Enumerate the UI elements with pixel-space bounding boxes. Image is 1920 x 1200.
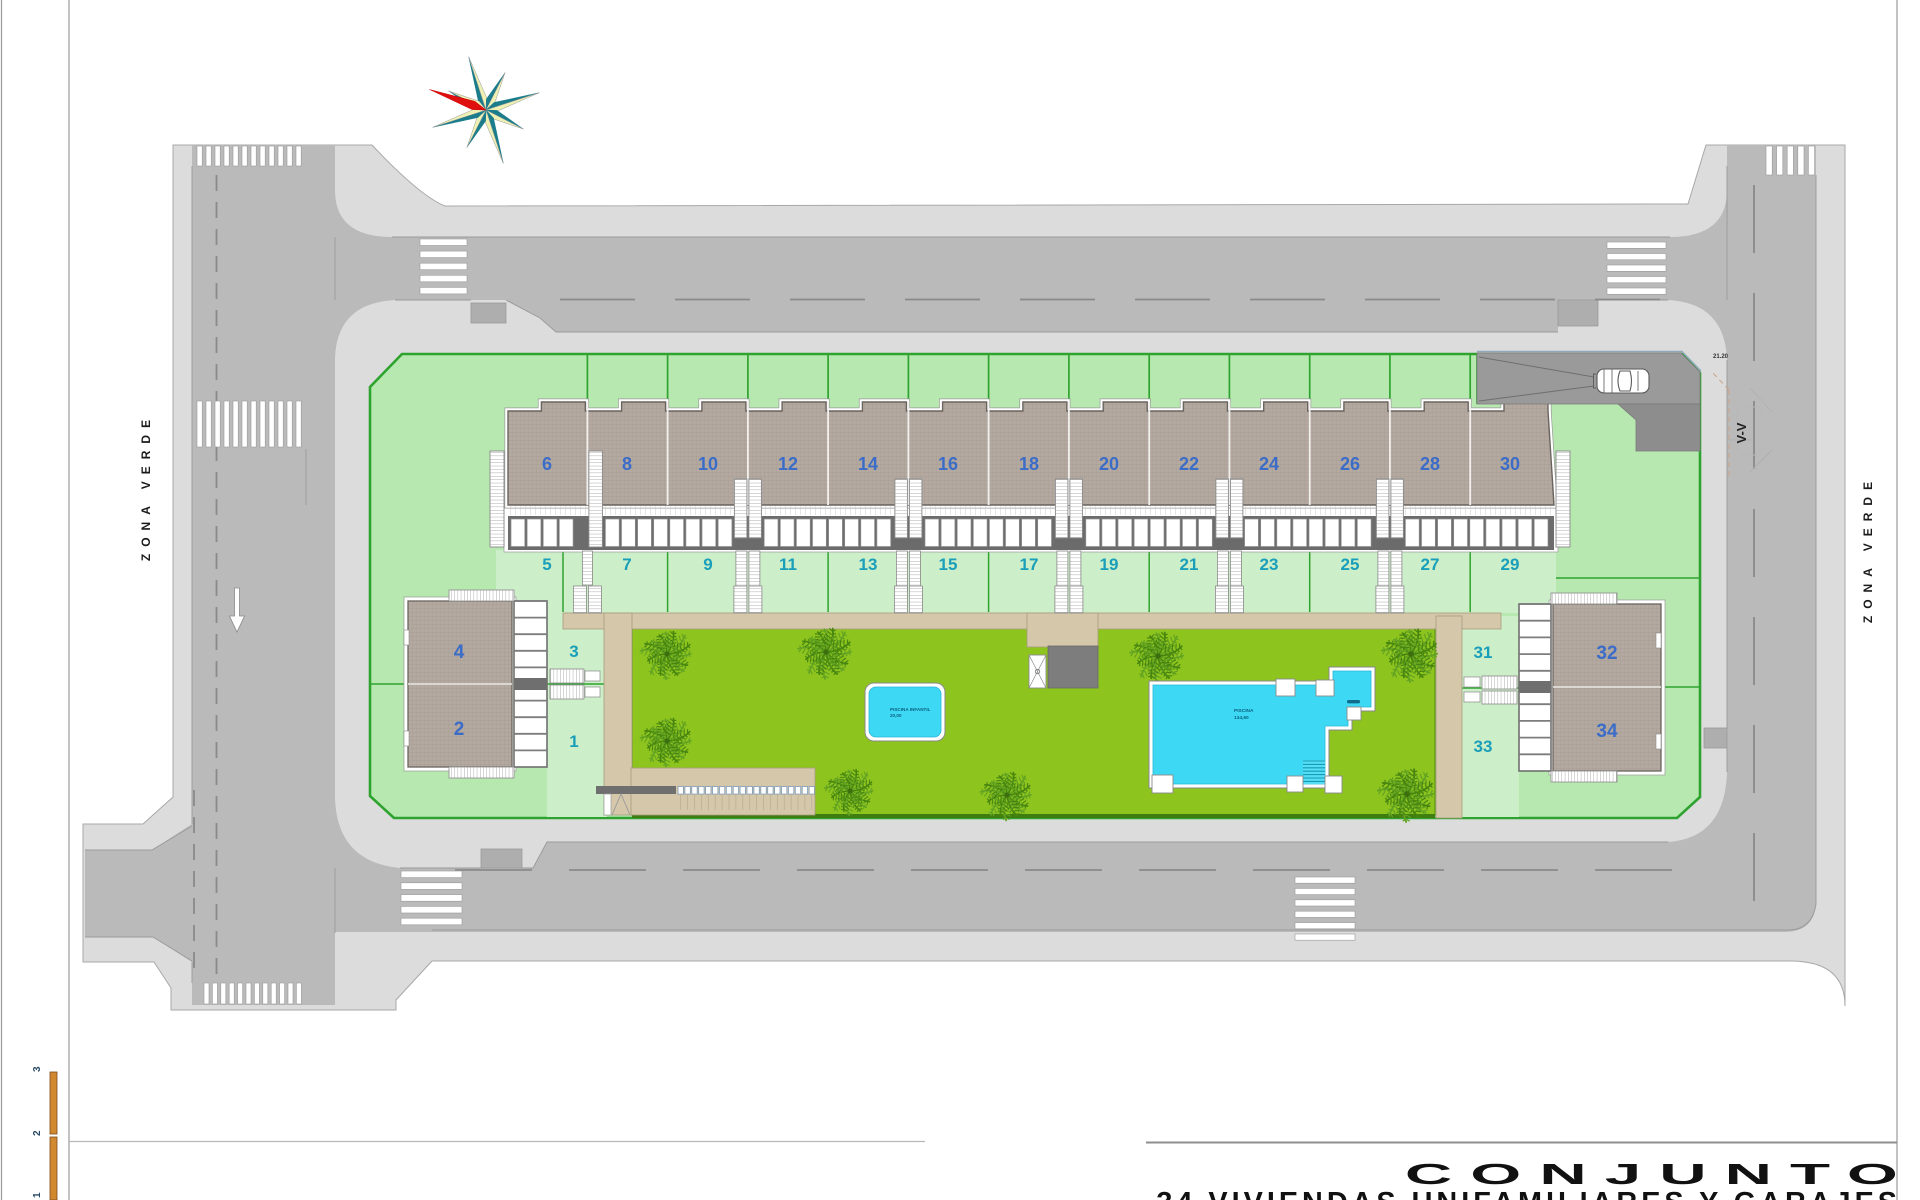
svg-text:20: 20 xyxy=(1099,454,1119,474)
svg-text:3: 3 xyxy=(32,1066,43,1072)
svg-text:1: 1 xyxy=(32,1192,43,1198)
svg-text:31: 31 xyxy=(1474,643,1493,662)
svg-text:21.20: 21.20 xyxy=(1713,354,1729,360)
svg-text:V-V: V-V xyxy=(1734,422,1749,443)
svg-text:19: 19 xyxy=(1100,555,1119,574)
svg-text:17: 17 xyxy=(1020,555,1039,574)
svg-text:2: 2 xyxy=(454,719,465,740)
svg-text:27: 27 xyxy=(1421,555,1440,574)
svg-text:11: 11 xyxy=(779,555,797,574)
svg-text:34: 34 xyxy=(1596,721,1618,742)
svg-text:16: 16 xyxy=(938,454,958,474)
svg-text:22: 22 xyxy=(1179,454,1199,474)
svg-text:15: 15 xyxy=(939,555,958,574)
svg-text:32: 32 xyxy=(1596,643,1617,664)
svg-text:10: 10 xyxy=(698,454,718,474)
svg-text:4: 4 xyxy=(454,642,465,663)
svg-text:26: 26 xyxy=(1340,454,1360,474)
svg-text:33: 33 xyxy=(1474,737,1493,756)
svg-text:9: 9 xyxy=(703,555,712,574)
svg-text:7: 7 xyxy=(622,555,631,574)
svg-text:CONJUNTO: CONJUNTO xyxy=(1405,1158,1916,1191)
svg-text:30: 30 xyxy=(1500,454,1520,474)
svg-text:ZONA VERDE: ZONA VERDE xyxy=(1861,475,1875,623)
svg-text:29: 29 xyxy=(1501,555,1520,574)
svg-text:5: 5 xyxy=(542,555,551,574)
svg-text:34 VIVIENDAS UNIFAMILIARES Y G: 34 VIVIENDAS UNIFAMILIARES Y GARAJES xyxy=(1156,1187,1901,1200)
svg-text:ZONA VERDE: ZONA VERDE xyxy=(139,413,153,561)
svg-text:134,60: 134,60 xyxy=(1234,715,1249,721)
svg-text:8: 8 xyxy=(622,454,632,474)
svg-text:1: 1 xyxy=(569,732,578,751)
svg-text:20,00: 20,00 xyxy=(890,713,902,718)
svg-text:PISCINA INFANTIL: PISCINA INFANTIL xyxy=(890,707,931,712)
svg-text:28: 28 xyxy=(1420,454,1440,474)
svg-text:PISCINA: PISCINA xyxy=(1234,708,1254,714)
svg-text:3: 3 xyxy=(569,642,578,661)
svg-text:21: 21 xyxy=(1180,555,1199,574)
svg-text:14: 14 xyxy=(858,454,878,474)
svg-text:25: 25 xyxy=(1341,555,1360,574)
svg-text:6: 6 xyxy=(542,454,552,474)
svg-text:12: 12 xyxy=(778,454,798,474)
svg-text:23: 23 xyxy=(1260,555,1279,574)
svg-text:2: 2 xyxy=(32,1130,43,1136)
svg-text:13: 13 xyxy=(859,555,878,574)
svg-text:24: 24 xyxy=(1259,454,1279,474)
svg-text:18: 18 xyxy=(1019,454,1039,474)
